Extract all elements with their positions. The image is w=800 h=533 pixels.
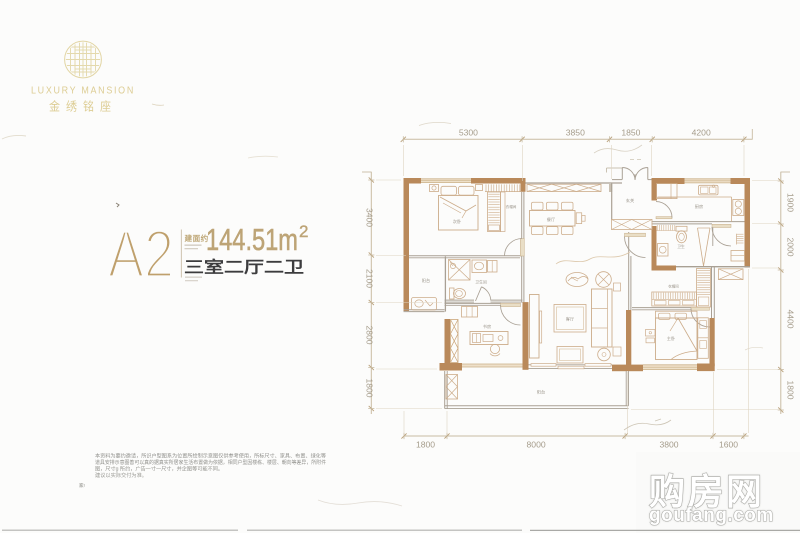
svg-text:goufang.com: goufang.com bbox=[649, 505, 774, 526]
svg-text:3800: 3800 bbox=[659, 440, 678, 450]
svg-text:4200: 4200 bbox=[692, 128, 711, 138]
svg-text:家!: 家! bbox=[79, 482, 85, 488]
svg-text:道具安排示意图善可以真的据真实所居家生活布置做为依据，相同户: 道具安排示意图善可以真的据真实所居家生活布置做为依据，相同户型因楼栋、楼层、朝向… bbox=[95, 458, 326, 466]
svg-text:客厅: 客厅 bbox=[566, 316, 574, 323]
svg-text:次卧: 次卧 bbox=[453, 218, 461, 225]
svg-text:图，尺寸g 所约，广告一寸一尺寸，并企图等可能不同。: 图，尺寸g 所约，广告一寸一尺寸，并企图等可能不同。 bbox=[95, 465, 223, 473]
svg-text:卫生间: 卫生间 bbox=[475, 280, 487, 285]
svg-text:1850: 1850 bbox=[621, 128, 640, 138]
svg-text:阳台: 阳台 bbox=[422, 277, 430, 284]
svg-text:1800: 1800 bbox=[786, 380, 796, 399]
svg-text:书房: 书房 bbox=[483, 323, 491, 330]
svg-text:1800: 1800 bbox=[365, 378, 375, 397]
svg-text:1900: 1900 bbox=[786, 193, 796, 212]
svg-text:主卧: 主卧 bbox=[667, 335, 675, 342]
svg-text:建面约: 建面约 bbox=[184, 233, 209, 243]
svg-text:阳台: 阳台 bbox=[537, 389, 545, 396]
svg-text:5300: 5300 bbox=[459, 128, 478, 138]
svg-text:3400: 3400 bbox=[365, 208, 375, 227]
svg-text:金绣铭座: 金绣铭座 bbox=[49, 99, 117, 114]
svg-text:A2: A2 bbox=[108, 217, 174, 292]
svg-text:2000: 2000 bbox=[786, 237, 796, 256]
svg-text:衣帽间: 衣帽间 bbox=[668, 284, 679, 289]
svg-text:建议以实际交付为准。: 建议以实际交付为准。 bbox=[95, 471, 147, 479]
svg-text:2800: 2800 bbox=[365, 325, 375, 344]
svg-text:144.51m: 144.51m bbox=[206, 223, 298, 257]
svg-text:玄关: 玄关 bbox=[626, 197, 634, 204]
svg-text:LUXURY MANSION: LUXURY MANSION bbox=[31, 85, 135, 97]
svg-text:卫生: 卫生 bbox=[677, 244, 685, 249]
svg-text:三室二厅二卫: 三室二厅二卫 bbox=[184, 258, 304, 277]
svg-text:3850: 3850 bbox=[566, 128, 585, 138]
svg-text:1600: 1600 bbox=[719, 440, 738, 450]
svg-text:2: 2 bbox=[299, 222, 308, 241]
svg-text:厨房: 厨房 bbox=[695, 203, 703, 210]
svg-text:本资料为要约邀请，所识户型图系为位置所绘制示意图仅供参考使用: 本资料为要约邀请，所识户型图系为位置所绘制示意图仅供参考使用，所标尺寸、家具、布… bbox=[95, 452, 326, 460]
svg-text:2100: 2100 bbox=[365, 269, 375, 288]
svg-text:8000: 8000 bbox=[527, 440, 546, 450]
svg-text:1800: 1800 bbox=[416, 440, 435, 450]
svg-text:衣帽间: 衣帽间 bbox=[506, 204, 517, 209]
svg-text:4400: 4400 bbox=[786, 309, 796, 328]
svg-text:餐厅: 餐厅 bbox=[547, 216, 555, 223]
